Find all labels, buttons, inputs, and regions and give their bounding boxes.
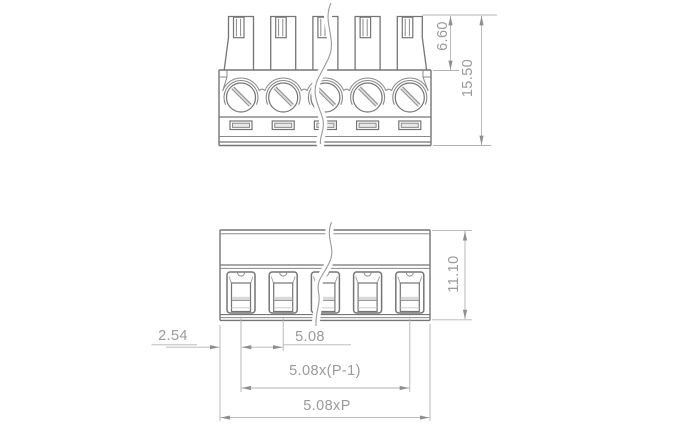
front-view: [219, 3, 497, 146]
plan-view: [152, 222, 473, 421]
screws: [224, 81, 427, 113]
drawing-canvas: 6.60 15.50 11.10 2.54 5.08 5.08x(P-1) 5.…: [0, 0, 680, 440]
dim-body-height-label: 11.10: [446, 246, 462, 302]
wire-entries: [227, 272, 424, 313]
dim-clamp-height-label: 6.60: [435, 12, 451, 60]
dim-total-height-label: 15.50: [460, 50, 476, 106]
dim-pitch-label: 5.08: [280, 329, 340, 345]
dim-total-width-label: 5.08xP: [267, 398, 387, 414]
dim-pole-span-label: 5.08x(P-1): [255, 363, 395, 379]
dim-edge-offset-label: 2.54: [143, 328, 203, 344]
